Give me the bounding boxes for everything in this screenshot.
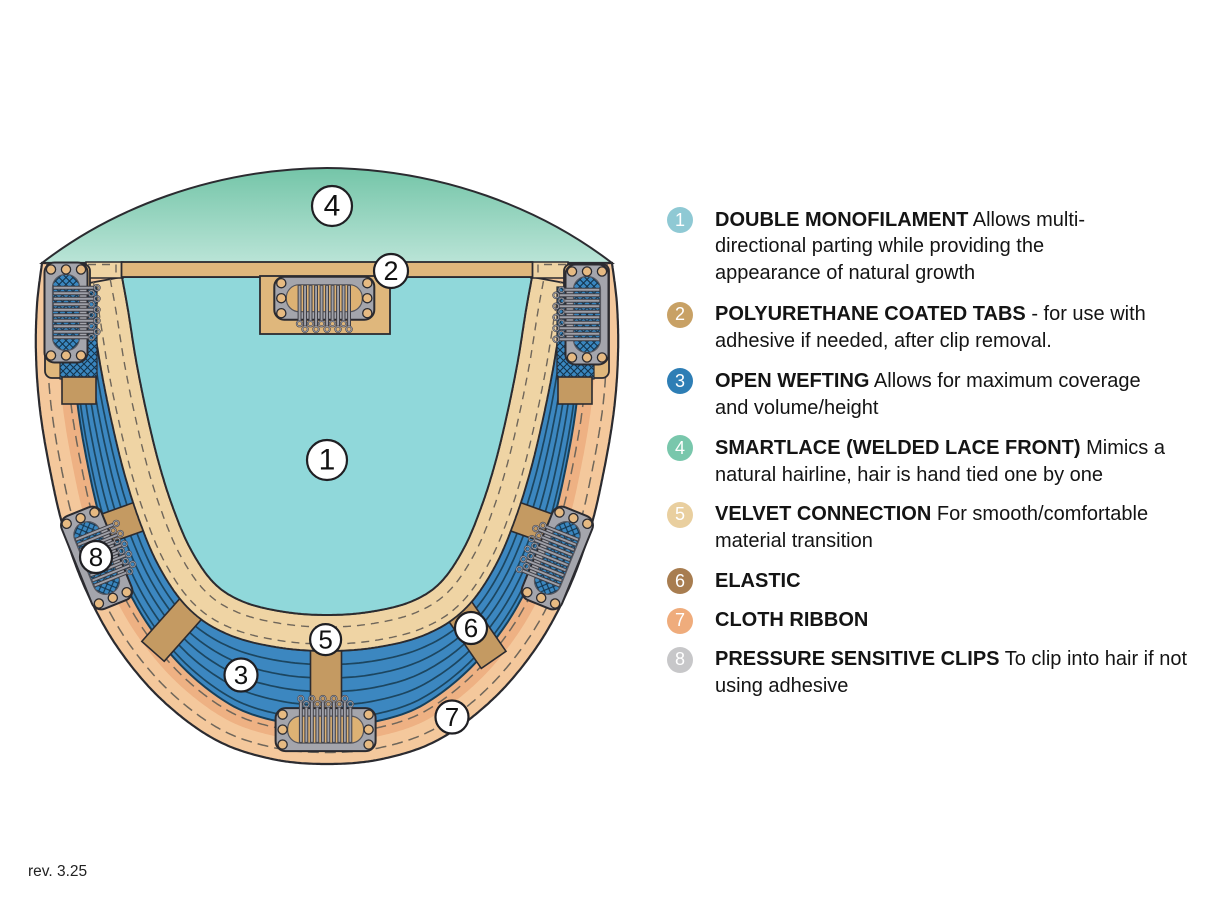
svg-text:5: 5 xyxy=(318,625,332,655)
svg-text:4: 4 xyxy=(324,190,341,223)
svg-text:8: 8 xyxy=(89,542,103,572)
svg-text:7: 7 xyxy=(445,702,459,732)
svg-text:1: 1 xyxy=(319,444,336,477)
svg-text:3: 3 xyxy=(234,660,248,690)
svg-text:6: 6 xyxy=(464,613,478,643)
svg-text:2: 2 xyxy=(383,256,398,286)
